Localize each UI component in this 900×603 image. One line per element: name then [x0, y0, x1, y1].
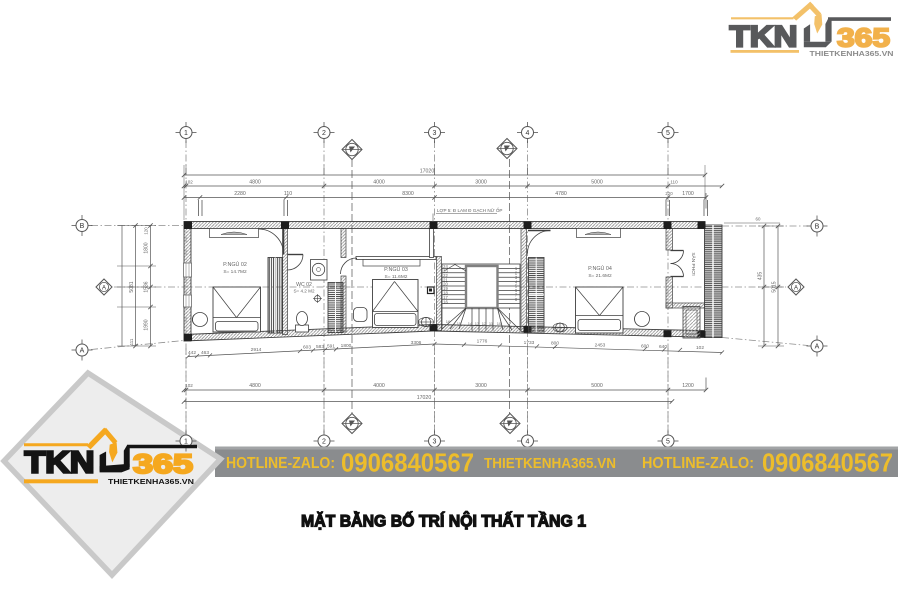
svg-text:S= 11.6M2: S= 11.6M2 — [385, 274, 408, 280]
svg-text:2914: 2914 — [251, 347, 262, 353]
svg-text:4800: 4800 — [249, 383, 261, 389]
svg-text:14: 14 — [468, 321, 473, 326]
svg-text:5: 5 — [666, 439, 670, 446]
svg-text:110: 110 — [284, 191, 292, 197]
svg-text:SÂN PHƠI: SÂN PHƠI — [690, 252, 697, 275]
svg-text:2: 2 — [322, 130, 326, 137]
svg-text:3306: 3306 — [411, 340, 422, 346]
svg-text:P.NGỦ 02: P.NGỦ 02 — [223, 261, 247, 268]
svg-text:60: 60 — [756, 217, 761, 222]
svg-text:4800: 4800 — [249, 180, 261, 186]
svg-text:1800: 1800 — [341, 343, 352, 349]
svg-text:2: 2 — [322, 439, 326, 446]
svg-text:120: 120 — [144, 227, 149, 235]
svg-text:3000: 3000 — [475, 180, 487, 186]
svg-text:TKN: TKN — [730, 20, 798, 53]
svg-text:3: 3 — [433, 130, 437, 137]
svg-text:5081: 5081 — [129, 281, 135, 292]
svg-text:16: 16 — [446, 319, 451, 324]
svg-text:1800: 1800 — [144, 242, 150, 253]
svg-text:1536: 1536 — [144, 281, 150, 292]
svg-text:3: 3 — [433, 439, 437, 446]
svg-text:10: 10 — [497, 321, 502, 326]
svg-text:P.NGỦ 04: P.NGỦ 04 — [588, 265, 612, 272]
svg-text:1: 1 — [184, 439, 188, 446]
svg-text:LỢP 5: Đ LAM Đ GẠCH NỮ ỐP: LỢP 5: Đ LAM Đ GẠCH NỮ ỐP — [437, 207, 502, 213]
svg-text:17020: 17020 — [420, 169, 435, 175]
svg-text:S= 14.7M2: S= 14.7M2 — [223, 269, 247, 275]
svg-text:15: 15 — [457, 321, 462, 326]
svg-text:A: A — [102, 285, 106, 291]
svg-text:B: B — [815, 224, 820, 231]
svg-text:S= 4.2 M2: S= 4.2 M2 — [293, 289, 315, 294]
svg-text:S= 21.6M2: S= 21.6M2 — [588, 273, 612, 279]
svg-text:102: 102 — [185, 383, 193, 388]
svg-text:MẶT BẰNG BỐ TRÍ NỘI THẤT TẦNG: MẶT BẰNG BỐ TRÍ NỘI THẤT TẦNG 1 — [301, 510, 586, 530]
svg-text:0906840567: 0906840567 — [341, 448, 474, 478]
svg-text:8300: 8300 — [402, 191, 414, 197]
svg-text:WC 02: WC 02 — [296, 282, 312, 288]
svg-text:TKN: TKN — [25, 445, 95, 480]
svg-text:5000: 5000 — [591, 383, 603, 389]
svg-text:111: 111 — [129, 338, 134, 345]
svg-text:603: 603 — [303, 345, 311, 351]
svg-text:800: 800 — [551, 341, 559, 347]
svg-text:365: 365 — [837, 22, 890, 52]
svg-text:B: B — [80, 223, 85, 230]
svg-text:102: 102 — [185, 180, 193, 185]
svg-text:102: 102 — [696, 345, 704, 351]
svg-text:2453: 2453 — [595, 343, 606, 349]
svg-text:4: 4 — [526, 130, 530, 137]
svg-text:110: 110 — [670, 180, 678, 185]
svg-text:16: 16 — [443, 300, 448, 305]
svg-text:17020: 17020 — [417, 395, 432, 401]
svg-text:220: 220 — [665, 191, 673, 196]
svg-text:365: 365 — [133, 449, 193, 479]
svg-text:600: 600 — [641, 344, 649, 350]
svg-text:5: 5 — [666, 130, 670, 137]
svg-text:THIETKENHA365.VN: THIETKENHA365.VN — [810, 49, 894, 58]
svg-text:1990: 1990 — [144, 319, 150, 330]
svg-text:4: 4 — [526, 439, 530, 446]
svg-text:0906840567: 0906840567 — [762, 448, 893, 478]
svg-text:THIETKENHA365.VN: THIETKENHA365.VN — [484, 456, 616, 472]
svg-text:HOTLINE-ZALO:: HOTLINE-ZALO: — [642, 455, 754, 472]
svg-text:4000: 4000 — [373, 180, 385, 186]
svg-text:12: 12 — [482, 321, 487, 326]
svg-text:4000: 4000 — [373, 383, 385, 389]
svg-text:A: A — [815, 344, 820, 351]
svg-text:2280: 2280 — [234, 191, 246, 197]
svg-text:1200: 1200 — [682, 383, 694, 389]
svg-text:442: 442 — [188, 350, 196, 356]
svg-text:591: 591 — [327, 344, 335, 350]
svg-text:13: 13 — [475, 321, 480, 326]
svg-text:A: A — [794, 285, 798, 291]
svg-text:435: 435 — [758, 272, 764, 281]
svg-text:5015: 5015 — [772, 281, 778, 292]
svg-text:4780: 4780 — [555, 191, 567, 197]
svg-text:1733: 1733 — [524, 340, 535, 346]
svg-text:A: A — [80, 348, 85, 355]
svg-text:HOTLINE-ZALO:: HOTLINE-ZALO: — [226, 455, 335, 472]
svg-text:3000: 3000 — [475, 383, 487, 389]
svg-text:P.NGỦ 03: P.NGỦ 03 — [384, 266, 408, 273]
svg-text:463: 463 — [201, 350, 209, 356]
svg-text:1700: 1700 — [682, 191, 694, 197]
svg-text:1: 1 — [184, 130, 188, 137]
svg-text:640: 640 — [659, 344, 667, 350]
svg-text:583: 583 — [316, 344, 324, 350]
svg-text:1776: 1776 — [477, 339, 488, 345]
svg-text:5000: 5000 — [591, 180, 603, 186]
svg-text:THIETKENHA365.VN: THIETKENHA365.VN — [108, 477, 194, 486]
